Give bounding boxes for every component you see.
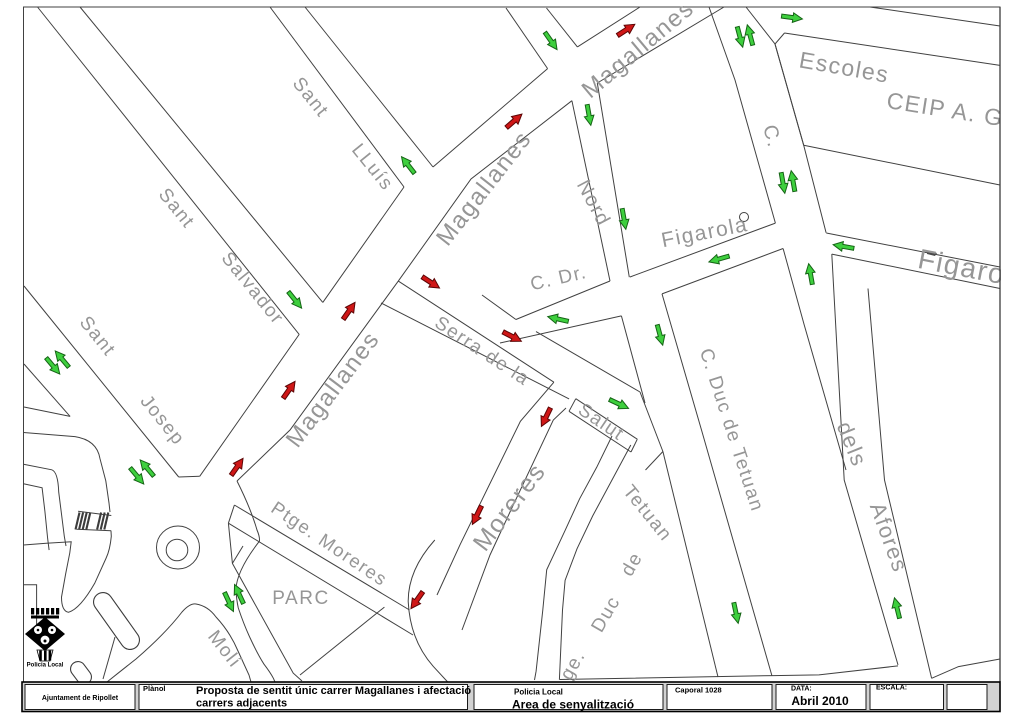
svg-text:Policia Local: Policia Local	[27, 663, 64, 669]
svg-text:Ajuntament de Ripollet: Ajuntament de Ripollet	[42, 695, 119, 702]
svg-text:Area de senyalització: Area de senyalització	[512, 698, 634, 712]
svg-text:Caporal 1028: Caporal 1028	[675, 686, 722, 695]
svg-text:ESCALA:: ESCALA:	[876, 685, 907, 692]
svg-text:PARC: PARC	[272, 588, 329, 609]
svg-text:DATA:: DATA:	[791, 686, 812, 693]
svg-text:Plànol: Plànol	[143, 684, 166, 693]
svg-text:carrers adjacents: carrers adjacents	[196, 698, 287, 710]
svg-text:Proposta de sentit únic carrer: Proposta de sentit únic carrer Magallane…	[196, 685, 471, 697]
svg-text:Policia Local: Policia Local	[514, 688, 563, 697]
svg-text:Abril 2010: Abril 2010	[791, 694, 849, 708]
